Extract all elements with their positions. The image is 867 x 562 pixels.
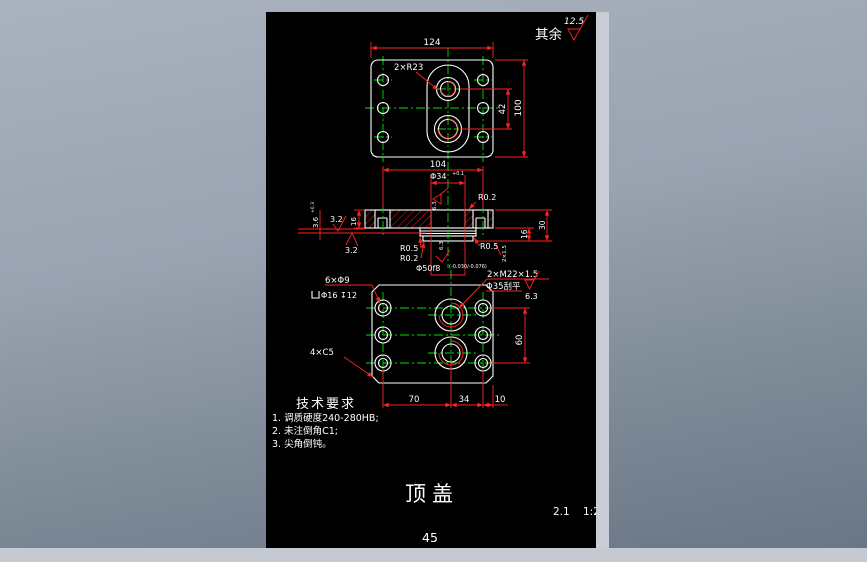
top-view-outline bbox=[371, 60, 493, 157]
dim-60: 60 bbox=[515, 335, 525, 346]
tech-req-title: 技术要求 bbox=[296, 397, 356, 412]
dim-bore-tol: +0.1 bbox=[452, 171, 464, 177]
tech-requirements: 技术要求 1. 调质硬度240-280HB; 2. 未注倒角C1; 3. 尖角倒… bbox=[272, 397, 379, 450]
part-name: 顶盖 bbox=[405, 482, 459, 506]
label-holes: 6×Φ9 bbox=[325, 276, 350, 286]
label-thread: 2×M22×1.5 bbox=[487, 270, 538, 280]
roughness-spotface: 6.3 bbox=[525, 292, 538, 301]
top-view-centerlines bbox=[365, 48, 499, 170]
dim-70: 70 bbox=[409, 395, 420, 405]
label-corner-chamfer: 4×C5 bbox=[310, 348, 334, 358]
dim-thickness: 16 bbox=[350, 217, 358, 226]
dim-boss-tol: (-0.030/-0.076) bbox=[449, 264, 487, 270]
roughness-icon bbox=[346, 233, 358, 246]
bottom-view-dimensions: 70 34 10 60 bbox=[383, 308, 530, 408]
surface-roughness-value: 12.5 bbox=[564, 17, 584, 27]
page-number: 45 bbox=[422, 530, 438, 545]
label-fillet-left-2: R0.2 bbox=[400, 254, 418, 263]
dim-boss: Φ50f8 bbox=[416, 264, 440, 273]
label-slot-radius: 2×R23 bbox=[394, 63, 423, 73]
tech-req-item: 3. 尖角倒钝。 bbox=[272, 438, 332, 450]
surface-note-text: 其余 bbox=[535, 26, 563, 43]
dim-total-height: 30 bbox=[538, 220, 547, 230]
desktop-background: 其余 12.5 bbox=[0, 0, 867, 562]
dim-chamfer: 2×1.5 bbox=[502, 245, 508, 262]
roughness-left-bottom: 3.2 bbox=[345, 246, 358, 255]
dim-boss-height: 16 bbox=[520, 229, 529, 239]
title-block: 顶盖 2.1 1:2 45 bbox=[405, 482, 596, 545]
bottom-view: 6×Φ9 Φ16 ↧12 2×M22×1.5 Φ35刮平 6.3 4×C5 bbox=[310, 270, 549, 408]
dim-10: 10 bbox=[495, 395, 506, 405]
label-fillet-left-1: R0.5 bbox=[400, 244, 418, 253]
top-view: 124 100 42 2×R23 bbox=[365, 38, 528, 170]
cad-sheet: 其余 12.5 bbox=[266, 12, 596, 548]
drawing-scale: 1:2 bbox=[583, 506, 596, 518]
roughness-bore: 6.3 bbox=[432, 201, 438, 210]
dim-42: 42 bbox=[498, 104, 508, 115]
label-fillet-top-right: R0.2 bbox=[478, 193, 496, 202]
dim-104: 104 bbox=[430, 160, 446, 170]
dim-100: 100 bbox=[514, 99, 524, 116]
bottom-view-outline bbox=[372, 285, 493, 383]
bottom-bar bbox=[0, 548, 867, 562]
dim-groove-tol: +0.3 bbox=[310, 202, 316, 213]
section-view: 104 Φ34 +0.1 6.3 R0.2 3.2 3.2 bbox=[298, 160, 552, 275]
drawing-code: 2.1 bbox=[553, 506, 570, 518]
dim-124: 124 bbox=[423, 38, 440, 48]
counterbore-icon bbox=[312, 291, 319, 298]
label-fillet-right: R0.5 bbox=[480, 242, 498, 251]
dim-34: 34 bbox=[459, 395, 470, 405]
sheet-edge-strip bbox=[596, 12, 609, 548]
surface-note-corner: 其余 12.5 bbox=[535, 15, 588, 43]
roughness-left-top: 3.2 bbox=[330, 215, 343, 224]
tech-req-item: 2. 未注倒角C1; bbox=[272, 425, 338, 437]
label-counterbore: Φ16 ↧12 bbox=[321, 291, 357, 300]
dim-bore: Φ34 bbox=[430, 172, 446, 181]
bottom-view-labels: 6×Φ9 Φ16 ↧12 2×M22×1.5 Φ35刮平 6.3 4×C5 bbox=[310, 270, 549, 377]
label-spotface: Φ35刮平 bbox=[486, 281, 521, 292]
roughness-boss: 6.3 bbox=[439, 241, 445, 250]
cad-drawing: 其余 12.5 bbox=[266, 12, 596, 548]
dim-groove: 3.6 bbox=[312, 216, 320, 228]
tech-req-item: 1. 调质硬度240-280HB; bbox=[272, 412, 379, 424]
